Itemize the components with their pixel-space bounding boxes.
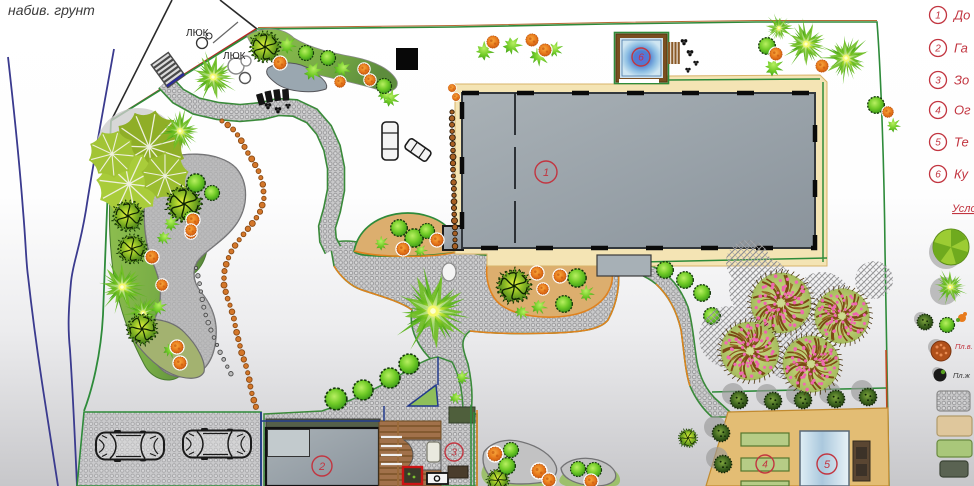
svg-text:набив. грунт: набив. грунт xyxy=(8,2,95,18)
svg-text:3: 3 xyxy=(935,76,941,87)
svg-text:6: 6 xyxy=(935,170,941,181)
svg-text:До: До xyxy=(952,8,970,23)
svg-text:5: 5 xyxy=(935,138,941,149)
svg-text:Зо: Зо xyxy=(954,73,969,88)
svg-text:2: 2 xyxy=(318,461,325,473)
svg-text:ЛЮК: ЛЮК xyxy=(186,28,209,39)
svg-text:Пл.ж: Пл.ж xyxy=(953,371,971,380)
svg-text:1: 1 xyxy=(543,167,549,179)
svg-text:4: 4 xyxy=(935,106,941,117)
svg-text:Га: Га xyxy=(954,41,968,56)
svg-text:Пл.в.: Пл.в. xyxy=(955,342,973,351)
svg-text:2: 2 xyxy=(934,44,941,55)
svg-text:4: 4 xyxy=(762,460,768,471)
svg-text:6: 6 xyxy=(638,53,644,64)
svg-text:Усло: Усло xyxy=(951,203,974,215)
svg-text:Ку: Ку xyxy=(954,167,970,182)
svg-text:3: 3 xyxy=(451,448,457,459)
svg-text:5: 5 xyxy=(824,459,831,471)
svg-text:Те: Те xyxy=(954,135,969,150)
svg-text:ЛЮК: ЛЮК xyxy=(223,51,246,62)
svg-text:1: 1 xyxy=(935,11,941,22)
svg-text:Ог: Ог xyxy=(954,103,971,118)
